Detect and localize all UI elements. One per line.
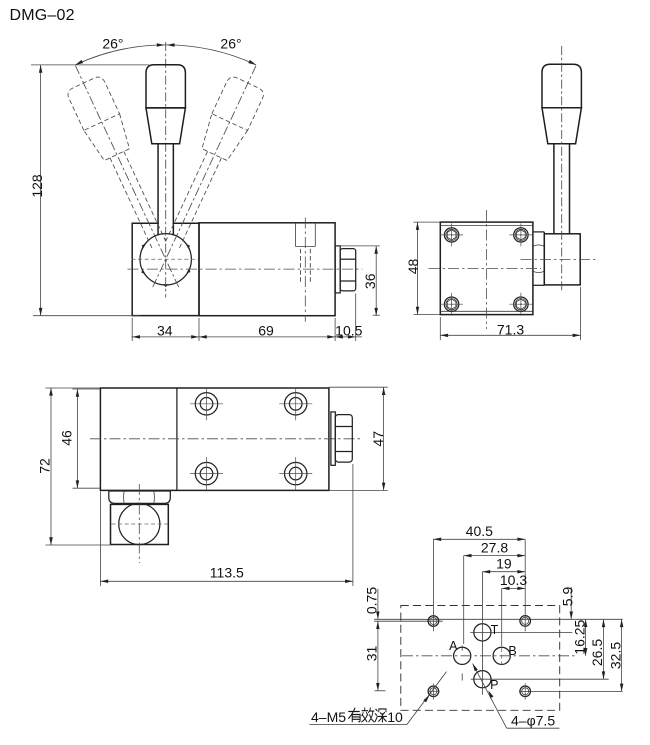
svg-text:128: 128 xyxy=(29,174,45,198)
svg-text:26°: 26° xyxy=(220,35,241,51)
svg-text:10.5: 10.5 xyxy=(335,322,362,338)
svg-text:34: 34 xyxy=(157,322,173,338)
svg-text:P: P xyxy=(490,678,498,692)
svg-text:31: 31 xyxy=(364,646,380,662)
svg-text:48: 48 xyxy=(405,259,421,275)
svg-text:40.5: 40.5 xyxy=(466,523,493,539)
svg-text:10.3: 10.3 xyxy=(500,572,527,588)
svg-text:DMG–02: DMG–02 xyxy=(10,7,75,24)
svg-text:47: 47 xyxy=(370,431,386,447)
svg-text:36: 36 xyxy=(362,273,378,289)
svg-text:72: 72 xyxy=(37,458,53,474)
svg-text:T: T xyxy=(491,623,499,637)
svg-text:B: B xyxy=(508,644,516,658)
svg-text:26.5: 26.5 xyxy=(589,639,605,666)
svg-text:71.3: 71.3 xyxy=(497,321,524,337)
svg-text:10: 10 xyxy=(387,709,403,725)
svg-text:5.9: 5.9 xyxy=(559,587,575,607)
svg-text:4–M5: 4–M5 xyxy=(311,709,346,725)
svg-text:16.25: 16.25 xyxy=(571,619,587,654)
svg-text:0.75: 0.75 xyxy=(364,587,380,614)
svg-text:19: 19 xyxy=(496,556,512,572)
svg-text:69: 69 xyxy=(258,322,274,338)
svg-text:46: 46 xyxy=(59,430,75,446)
svg-text:A: A xyxy=(449,639,458,653)
svg-text:113.5: 113.5 xyxy=(210,564,244,580)
svg-text:27.8: 27.8 xyxy=(481,539,508,555)
svg-text:26°: 26° xyxy=(102,35,123,51)
svg-text:32.5: 32.5 xyxy=(607,642,623,669)
svg-text:4–φ7.5: 4–φ7.5 xyxy=(511,712,555,728)
